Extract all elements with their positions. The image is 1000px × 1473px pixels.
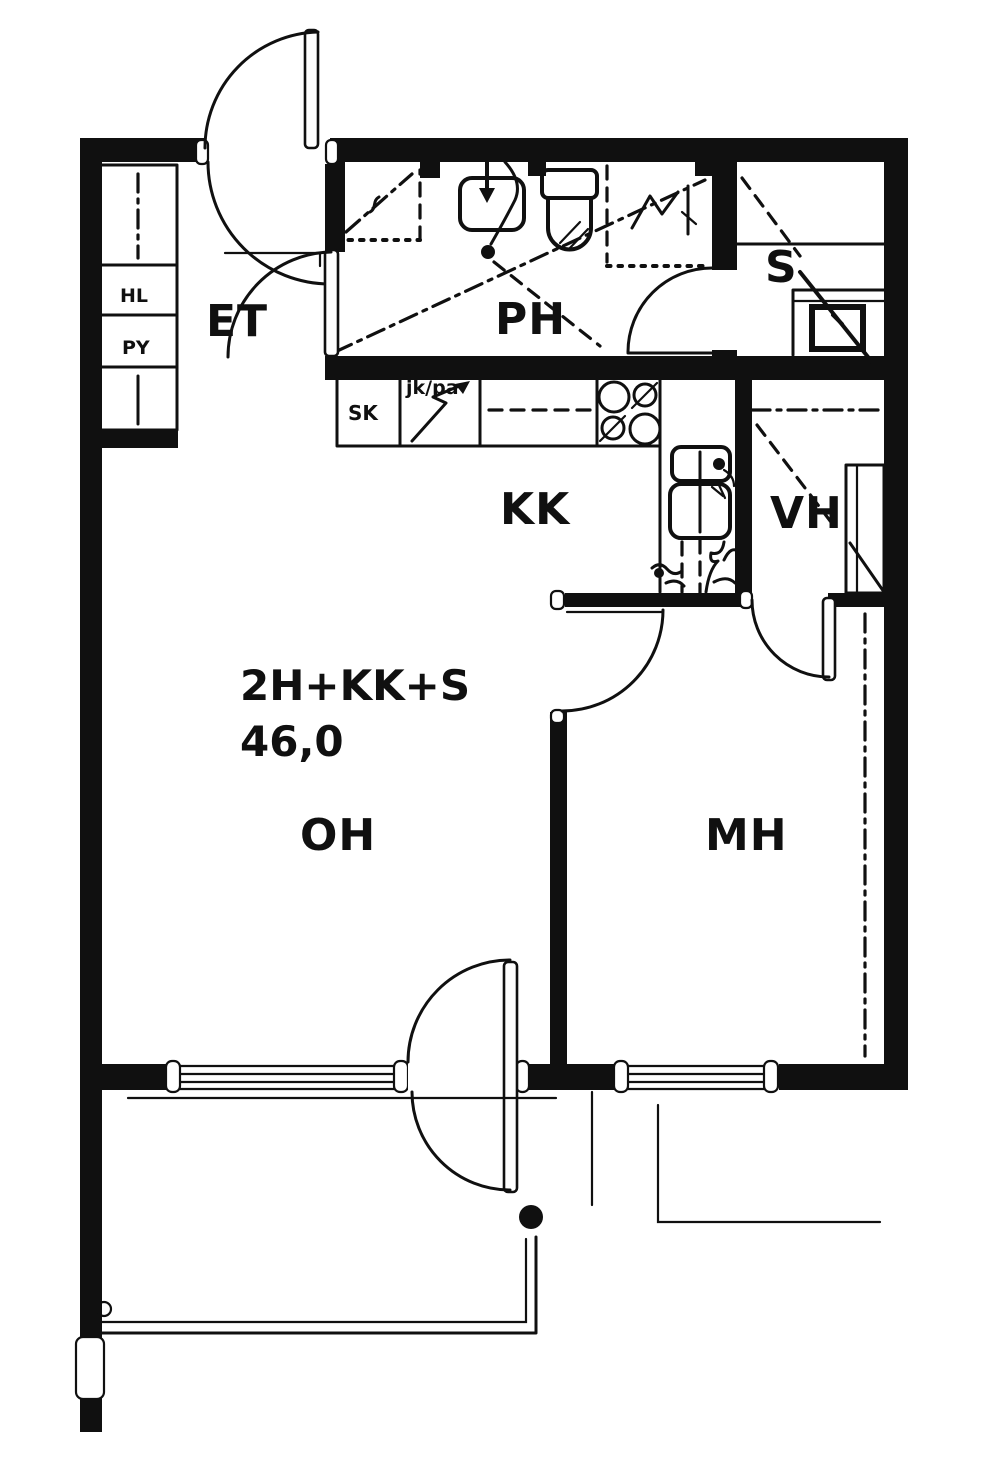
balcony-door-arc-out [412, 1092, 510, 1190]
wall-kk-mh [565, 593, 740, 607]
room-label-kk: KK [500, 484, 571, 535]
kk-scribble-dot [654, 568, 664, 578]
balcony-column [519, 1205, 543, 1229]
cabinet-label-jkpa: jk/pa [405, 377, 459, 399]
vh-shelf-diagonal [850, 543, 884, 592]
ph-door-leaf [325, 250, 338, 356]
labels: 2H+KK+S 46,0 ET PH S KK VH OH MH HL PY S… [120, 242, 843, 861]
apartment-type-label: 2H+KK+S [240, 661, 470, 710]
vh-shelf-unit [846, 465, 884, 593]
room-label-mh: MH [705, 810, 788, 861]
side-wall-opening [76, 1337, 104, 1399]
mh-door [551, 591, 663, 723]
wall-oh-mh [550, 712, 567, 1064]
room-label-et: ET [206, 296, 268, 347]
balcony-door-arc-in [408, 960, 510, 1062]
oh-window-cap-left [166, 1061, 180, 1092]
entrance-door-leaf [305, 30, 318, 148]
floor-drain-dot [481, 245, 495, 259]
wall-vh-mh [828, 593, 884, 607]
wall-ph-sauna [712, 162, 737, 270]
room-label-oh: OH [300, 810, 376, 861]
balcony-door-leaf [504, 962, 517, 1192]
wall-stub-1 [420, 162, 440, 178]
entrance-door [196, 30, 338, 284]
mh-door-post-top [551, 591, 564, 609]
room-label-vh: VH [770, 488, 843, 539]
cabinet-label-sk: SK [348, 401, 379, 425]
wall-et-ph [325, 162, 345, 252]
balcony [76, 1092, 880, 1399]
closet-label-hl: HL [120, 285, 148, 307]
entrance-door-arc-in [208, 162, 330, 284]
room-label-sauna: S [765, 242, 798, 293]
vh-door [740, 591, 835, 680]
closet-end-bar [98, 430, 178, 448]
balcony-railing-inner [96, 1239, 526, 1322]
stove-burner-1 [599, 382, 629, 412]
vh-door-arc [752, 600, 829, 677]
washbasin-tap-arrow [479, 188, 495, 203]
balcony-door-opening [408, 1062, 518, 1092]
oh-window-cap-right [394, 1061, 408, 1092]
floor-plan-page: 2H+KK+S 46,0 ET PH S KK VH OH MH HL PY S… [0, 0, 1000, 1473]
vh-door-leaf [823, 598, 835, 680]
stove-burner-4 [630, 414, 660, 444]
sauna-door [628, 268, 712, 353]
balcony-railing-outer [96, 1237, 536, 1333]
sink-tap-dot [713, 458, 725, 470]
apartment-area-label: 46,0 [240, 717, 344, 766]
wall-stub-3 [695, 162, 712, 176]
mh-door-arc [562, 610, 663, 711]
entrance-door-arc-out [205, 32, 318, 148]
wall-kk-vh [735, 380, 752, 607]
mh-window-cap-left [614, 1061, 628, 1092]
entrance-post-right [326, 140, 338, 164]
neighbor-outline [658, 1105, 880, 1222]
toilet-tank [542, 170, 597, 198]
walls [80, 138, 908, 1432]
balcony-door [408, 960, 529, 1192]
vh-door-post [740, 591, 752, 608]
mh-window-cap-right [764, 1061, 778, 1092]
sauna-door-arc [628, 268, 712, 352]
wall-right [884, 138, 908, 1090]
floor-plan-drawing: 2H+KK+S 46,0 ET PH S KK VH OH MH HL PY S… [0, 0, 1000, 1473]
sauna-fixtures [737, 178, 884, 362]
oh-window [166, 1061, 408, 1092]
shower-diagonal [346, 174, 412, 232]
closet-label-py: PY [122, 337, 150, 359]
mh-window [614, 1061, 779, 1092]
room-label-ph: PH [495, 294, 566, 345]
